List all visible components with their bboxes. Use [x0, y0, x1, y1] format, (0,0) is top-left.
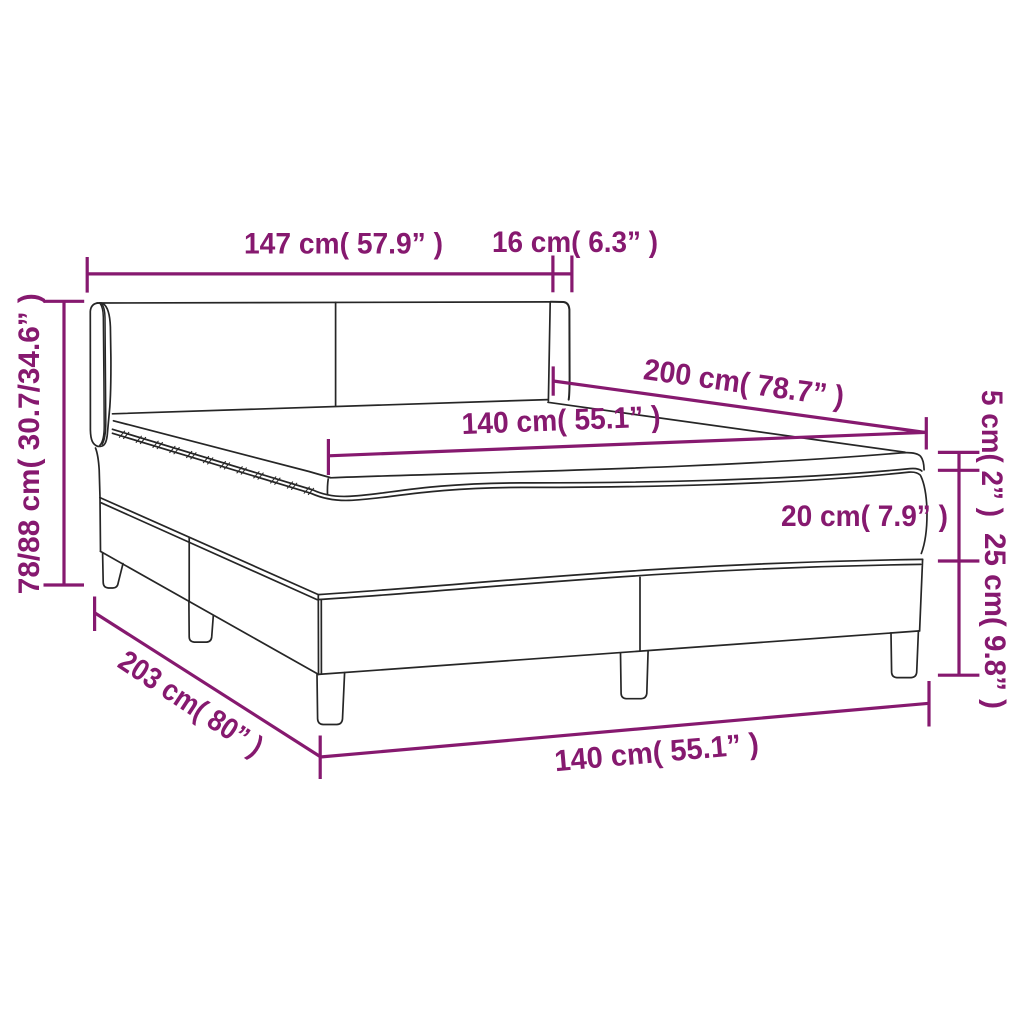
- svg-text:5 cm( 2” ): 5 cm( 2” ): [975, 390, 1008, 517]
- svg-text:16 cm( 6.3” ): 16 cm( 6.3” ): [492, 226, 658, 259]
- svg-text:147 cm( 57.9” ): 147 cm( 57.9” ): [244, 228, 443, 261]
- svg-text:78/88 cm( 30.7/34.6” ): 78/88 cm( 30.7/34.6” ): [13, 293, 46, 594]
- svg-text:25 cm( 9.8” ): 25 cm( 9.8” ): [978, 533, 1011, 709]
- svg-text:203 cm( 80” ): 203 cm( 80” ): [112, 644, 269, 763]
- svg-text:20 cm( 7.9” ): 20 cm( 7.9” ): [781, 500, 948, 533]
- svg-text:140 cm( 55.1” ): 140 cm( 55.1” ): [461, 400, 661, 441]
- svg-text:200 cm( 78.7” ): 200 cm( 78.7” ): [642, 353, 847, 413]
